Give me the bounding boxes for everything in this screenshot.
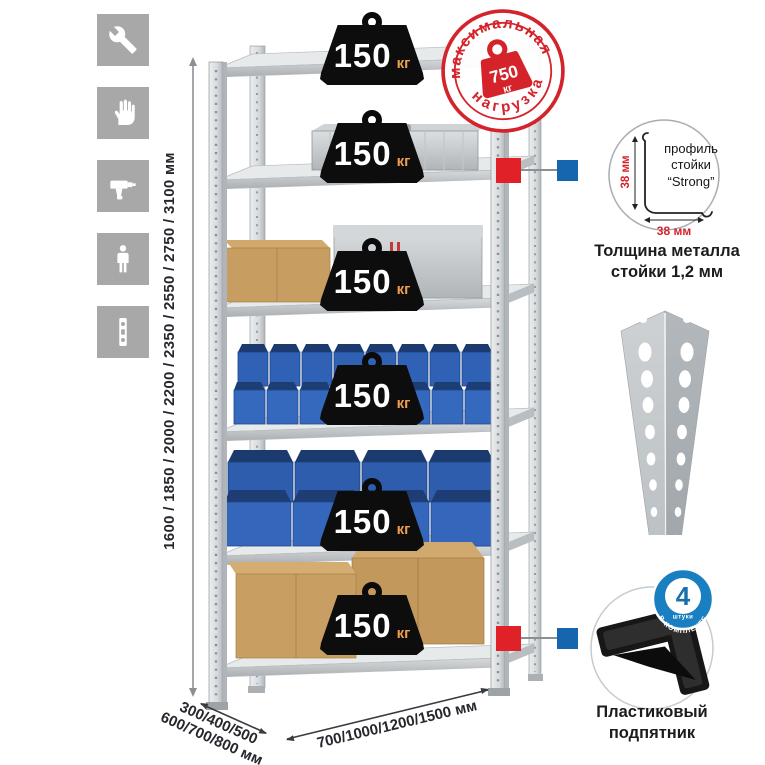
quantity-sub-label: штуки bbox=[673, 615, 694, 621]
quantity-number: 4 bbox=[676, 581, 691, 611]
profile-dim-vertical: 38 мм bbox=[620, 155, 632, 188]
max-load-stamp: 750 кг максимальная нагрузка bbox=[436, 4, 570, 138]
profile-label-line1: профиль bbox=[664, 141, 718, 156]
height-dimension-line bbox=[189, 57, 197, 697]
load-value: 150 bbox=[334, 505, 392, 538]
profile-caption-line1: Толщина металла bbox=[582, 241, 752, 262]
foot-caption-line1: Пластиковый bbox=[568, 702, 736, 723]
shelf-load-badge: 150кг bbox=[320, 478, 424, 551]
angle-post-image bbox=[595, 295, 740, 535]
load-unit: кг bbox=[397, 282, 411, 297]
shelf-load-badge: 150кг bbox=[320, 110, 424, 183]
profile-label-line3: “Strong” bbox=[668, 174, 715, 189]
shelf-load-badge: 150кг bbox=[320, 238, 424, 311]
shelf-load-badge: 150кг bbox=[320, 12, 424, 85]
load-unit: кг bbox=[397, 522, 411, 537]
load-value: 150 bbox=[334, 265, 392, 298]
load-value: 150 bbox=[334, 39, 392, 72]
load-unit: кг bbox=[397, 154, 411, 169]
profile-caption-line2: стойки 1,2 мм bbox=[582, 262, 752, 283]
load-value: 150 bbox=[334, 609, 392, 642]
shelf-load-badge: 150кг bbox=[320, 352, 424, 425]
foot-caption-line2: подпятник bbox=[568, 723, 736, 744]
profile-label-line2: стойки bbox=[671, 157, 711, 172]
foot-caption: Пластиковый подпятник bbox=[568, 702, 736, 745]
profile-caption: Толщина металла стойки 1,2 мм bbox=[582, 241, 752, 284]
load-value: 150 bbox=[334, 137, 392, 170]
height-dimension-label: 1600 / 1850 / 2000 / 2200 / 2350 / 2550 … bbox=[161, 71, 183, 631]
blue-marker-square bbox=[557, 628, 578, 649]
load-unit: кг bbox=[397, 56, 411, 71]
blue-marker-square bbox=[557, 160, 578, 181]
red-marker-square bbox=[496, 626, 521, 651]
load-unit: кг bbox=[397, 626, 411, 641]
product-infographic: 150кг 150кг 150кг 150кг 150кг 150кг 750 … bbox=[0, 0, 765, 765]
foot-connector bbox=[496, 626, 578, 651]
profile-connector bbox=[496, 158, 578, 183]
red-marker-square bbox=[496, 158, 521, 183]
shelf-load-badge: 150кг bbox=[320, 582, 424, 655]
profile-dim-horizontal: 38 мм bbox=[657, 224, 692, 238]
load-value: 150 bbox=[334, 379, 392, 412]
load-unit: кг bbox=[397, 396, 411, 411]
quantity-badge: 4 штуки в комплекте bbox=[653, 569, 713, 635]
